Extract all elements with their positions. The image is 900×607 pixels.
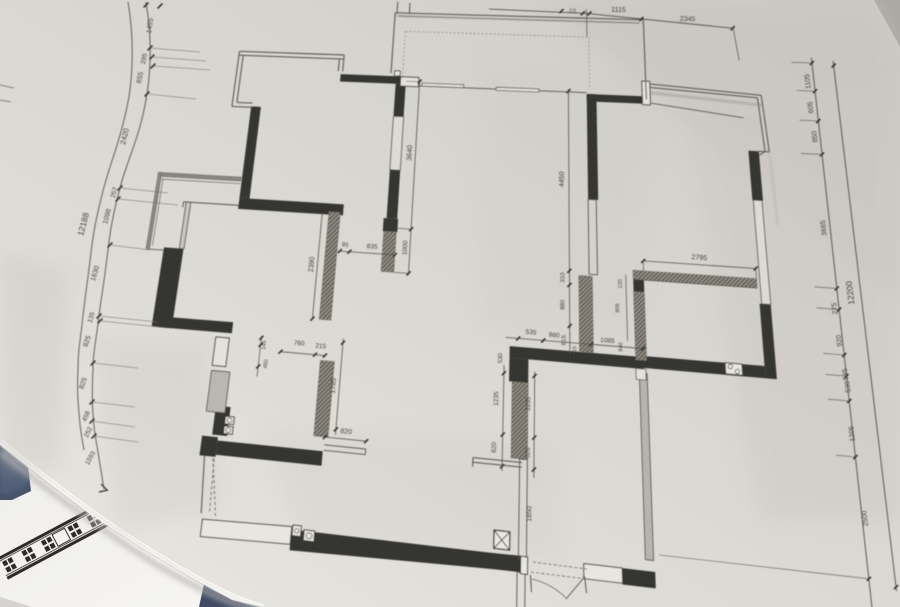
svg-text:1235: 1235: [493, 391, 500, 406]
svg-text:620: 620: [525, 447, 532, 458]
svg-text:220: 220: [618, 279, 624, 288]
svg-text:2390: 2390: [308, 256, 316, 272]
svg-text:615: 615: [572, 346, 578, 355]
svg-text:850: 850: [811, 130, 819, 142]
svg-text:805: 805: [615, 303, 621, 312]
svg-text:835: 835: [366, 243, 378, 251]
svg-text:145: 145: [261, 340, 268, 350]
svg-text:450: 450: [263, 359, 270, 369]
svg-text:920: 920: [836, 334, 844, 346]
svg-text:1850: 1850: [526, 506, 533, 522]
svg-text:1085: 1085: [600, 337, 615, 345]
svg-text:310: 310: [560, 272, 566, 283]
svg-text:880: 880: [560, 299, 566, 310]
svg-text:1000: 1000: [402, 240, 410, 255]
svg-text:615: 615: [562, 335, 568, 346]
svg-text:760: 760: [293, 340, 305, 348]
svg-text:275: 275: [831, 302, 839, 314]
svg-text:530: 530: [498, 352, 504, 363]
svg-text:1785: 1785: [330, 378, 338, 394]
svg-text:980: 980: [548, 332, 560, 340]
svg-text:545: 545: [842, 368, 850, 380]
svg-text:3640: 3640: [406, 145, 414, 161]
svg-text:2345: 2345: [680, 16, 696, 23]
svg-text:95: 95: [342, 242, 350, 248]
svg-text:2795: 2795: [691, 254, 707, 262]
svg-text:1115: 1115: [611, 7, 626, 14]
svg-text:530: 530: [844, 380, 852, 392]
svg-text:605: 605: [807, 101, 815, 113]
svg-text:4450: 4450: [559, 171, 566, 187]
svg-text:840: 840: [618, 342, 624, 351]
svg-text:2:0: 2:0: [569, 8, 576, 14]
svg-text:535: 535: [525, 329, 537, 337]
svg-text:820: 820: [340, 428, 352, 436]
svg-text:620: 620: [491, 441, 498, 452]
svg-text:1235: 1235: [525, 396, 532, 411]
svg-text:215: 215: [315, 343, 327, 351]
